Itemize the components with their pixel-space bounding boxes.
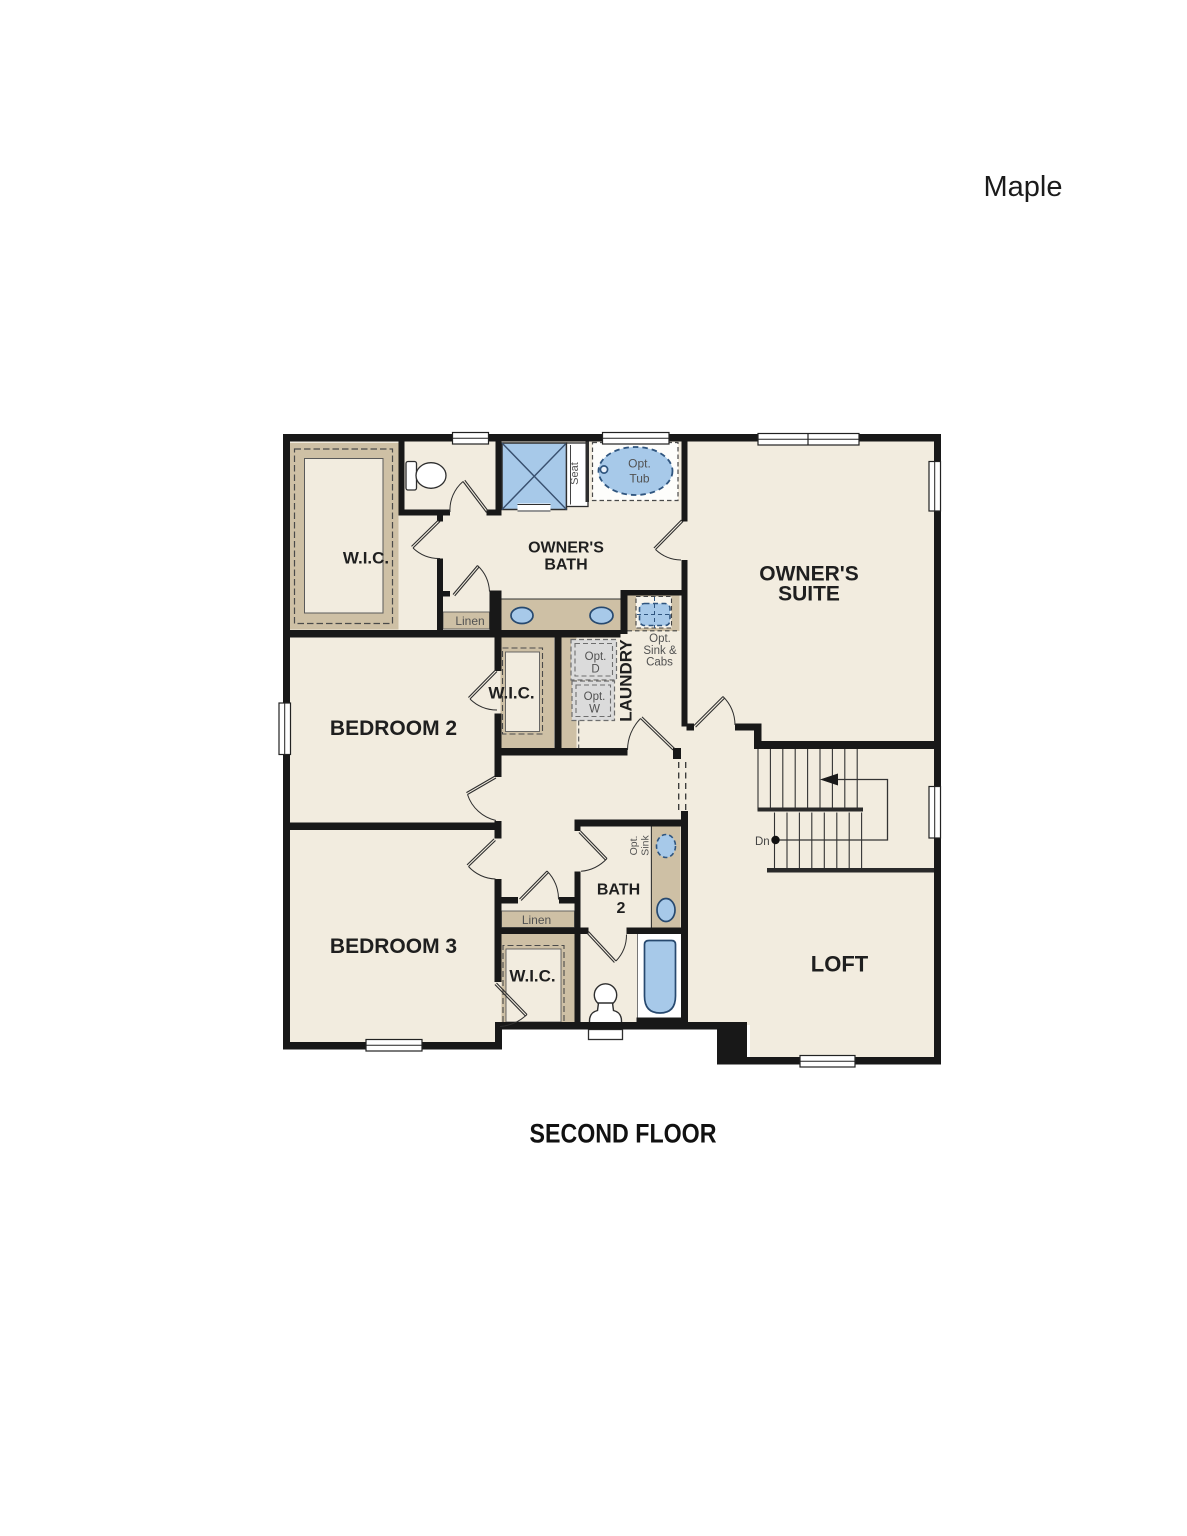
svg-text:SECOND FLOOR: SECOND FLOOR	[530, 1119, 717, 1149]
svg-text:BATH: BATH	[544, 557, 587, 574]
svg-text:Opt.: Opt.	[585, 651, 607, 663]
svg-text:W.I.C.: W.I.C.	[509, 967, 555, 986]
svg-text:SUITE: SUITE	[778, 583, 840, 606]
svg-text:BEDROOM 3: BEDROOM 3	[330, 935, 457, 958]
svg-text:Maple: Maple	[984, 171, 1063, 203]
svg-text:Cabs: Cabs	[646, 657, 673, 669]
svg-text:Seat: Seat	[569, 462, 581, 485]
svg-text:Sink &: Sink &	[643, 645, 677, 657]
svg-text:W: W	[589, 704, 600, 716]
svg-text:W.I.C.: W.I.C.	[488, 684, 534, 703]
svg-text:Dn: Dn	[755, 836, 770, 848]
svg-text:LOFT: LOFT	[811, 952, 869, 977]
svg-text:Sink: Sink	[640, 835, 652, 856]
svg-text:Linen: Linen	[522, 913, 551, 927]
svg-text:BATH: BATH	[597, 882, 640, 899]
svg-text:Opt.: Opt.	[628, 836, 640, 856]
svg-text:Opt.: Opt.	[584, 691, 606, 703]
svg-text:OWNER'S: OWNER'S	[528, 540, 604, 557]
svg-text:Opt.: Opt.	[649, 633, 671, 645]
svg-text:2: 2	[617, 900, 626, 917]
svg-text:BEDROOM 2: BEDROOM 2	[330, 717, 457, 740]
svg-text:Linen: Linen	[455, 614, 484, 628]
svg-text:Tub: Tub	[629, 472, 650, 486]
svg-text:D: D	[591, 664, 599, 676]
svg-text:W.I.C.: W.I.C.	[343, 549, 389, 568]
svg-text:LAUNDRY: LAUNDRY	[617, 639, 636, 722]
svg-text:Opt.: Opt.	[628, 457, 651, 471]
